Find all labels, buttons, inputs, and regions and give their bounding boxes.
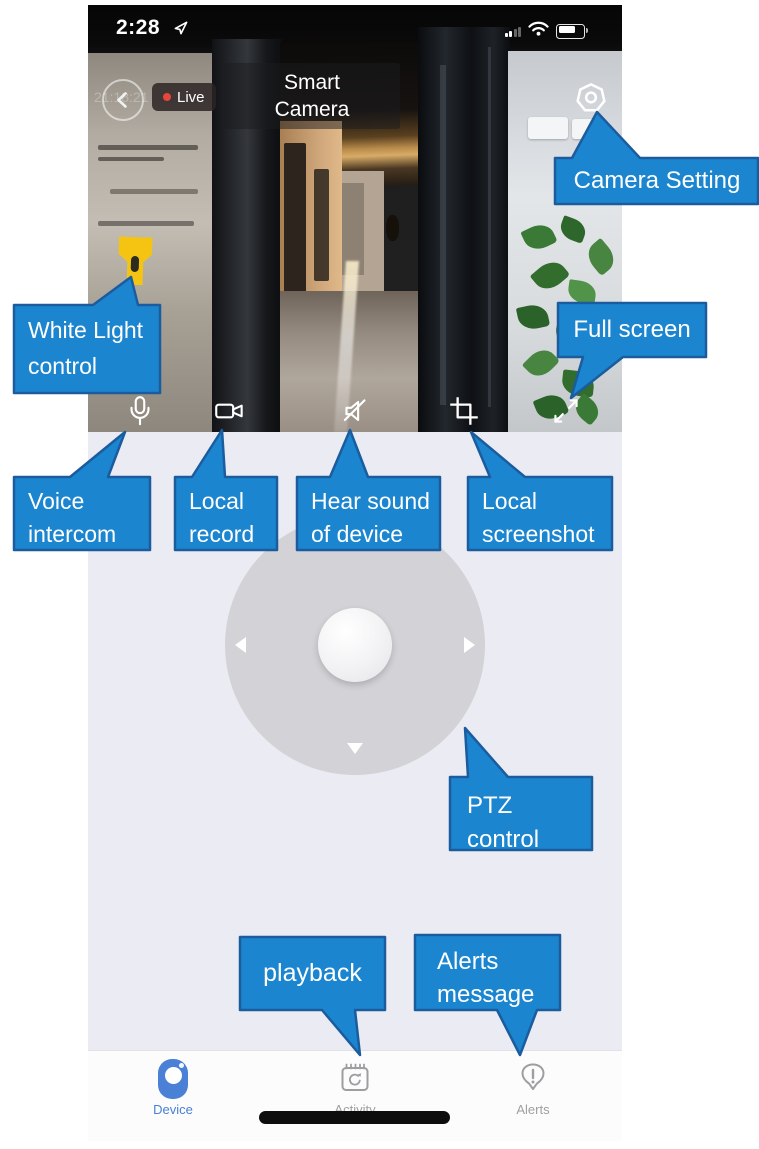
ptz-down-arrow[interactable]	[347, 743, 363, 754]
microphone-icon	[122, 393, 158, 429]
local-record-button[interactable]	[212, 393, 248, 429]
scene-sign-line	[98, 157, 164, 161]
alerts-exclamation-icon	[515, 1059, 551, 1099]
crop-screenshot-icon	[446, 393, 482, 429]
voice-intercom-button[interactable]	[122, 393, 158, 429]
scene-door	[284, 143, 306, 293]
fullscreen-expand-icon	[548, 393, 584, 429]
home-indicator[interactable]	[259, 1111, 450, 1124]
plant-leaf	[522, 344, 560, 382]
scene-glass-glint	[488, 47, 491, 407]
fullscreen-button[interactable]	[548, 393, 584, 429]
plant-leaf	[582, 238, 620, 276]
ptz-center-knob[interactable]	[318, 608, 392, 682]
back-button[interactable]	[102, 79, 144, 121]
status-time: 2:28	[116, 16, 160, 40]
tab-alerts[interactable]: Alerts	[488, 1059, 578, 1117]
scene-glass-glint	[440, 65, 446, 405]
white-light-button[interactable]	[115, 236, 155, 285]
camera-feed: 21:18:21 2:28	[88, 5, 622, 432]
scene-right-glass-doors	[418, 27, 510, 432]
bottom-nav: Device Activity Ale	[88, 1050, 622, 1141]
plant-leaf	[520, 220, 557, 254]
plant-leaf	[530, 256, 571, 296]
tab-activity[interactable]: Activity	[310, 1059, 400, 1117]
back-chevron-icon	[112, 89, 134, 111]
flashlight-slot	[131, 256, 140, 272]
scene-door	[314, 169, 329, 281]
device-camera-icon	[158, 1059, 188, 1099]
speaker-muted-icon	[338, 393, 374, 429]
location-arrow-icon	[174, 21, 188, 40]
wifi-icon	[528, 21, 549, 41]
local-screenshot-button[interactable]	[446, 393, 482, 429]
settings-gear-icon	[570, 77, 612, 119]
ptz-left-arrow[interactable]	[235, 637, 246, 653]
scene-sign-line	[98, 221, 194, 226]
scene-corridor-wall	[280, 121, 342, 311]
video-record-icon	[212, 393, 248, 429]
camera-settings-button[interactable]	[570, 77, 612, 119]
annotated-screenshot: 21:18:21 2:28	[0, 0, 759, 1149]
live-dot	[163, 93, 171, 101]
page-title: Smart Camera	[224, 63, 400, 129]
ptz-up-arrow[interactable]	[347, 535, 363, 546]
phone-screen: 21:18:21 2:28	[88, 5, 622, 1140]
scene-distant-figure	[386, 215, 399, 241]
plant-leaf	[567, 279, 598, 305]
tab-alerts-label: Alerts	[516, 1102, 549, 1117]
battery-icon	[556, 24, 585, 39]
ptz-right-arrow[interactable]	[464, 637, 475, 653]
title-line-2: Camera	[275, 96, 350, 123]
live-label: Live	[177, 89, 205, 106]
device-sound-button[interactable]	[338, 393, 374, 429]
activity-calendar-icon	[337, 1059, 373, 1099]
status-bar: 2:28	[88, 5, 622, 55]
scene-sign-line	[110, 189, 198, 194]
plant-leaf	[516, 302, 550, 332]
scene-light-switch	[528, 117, 568, 139]
tab-device[interactable]: Device	[128, 1059, 218, 1117]
scene-sign-line	[98, 145, 198, 150]
title-line-1: Smart	[284, 69, 340, 96]
cellular-signal-icon	[505, 25, 522, 37]
scene-light-switch	[572, 119, 604, 139]
tab-device-label: Device	[153, 1102, 193, 1117]
live-badge: Live	[152, 83, 216, 111]
